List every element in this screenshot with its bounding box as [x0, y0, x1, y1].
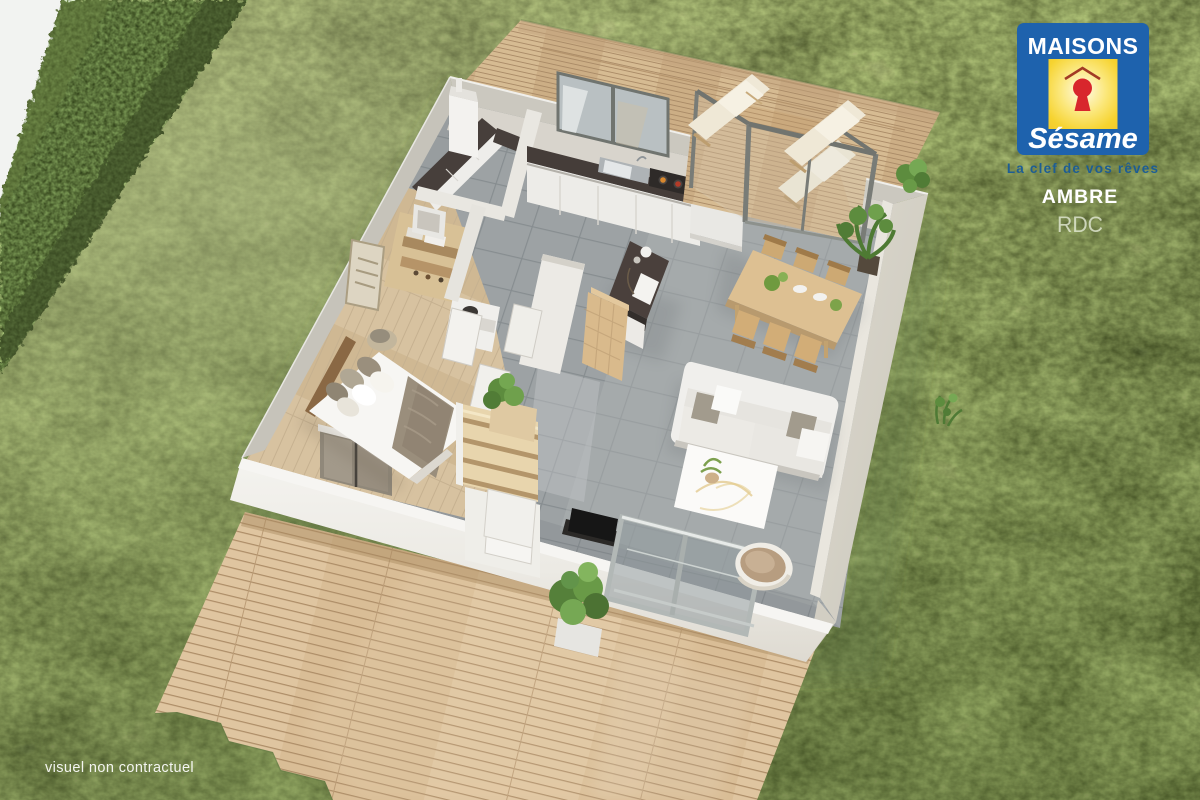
svg-text:Sésame: Sésame	[1028, 123, 1138, 155]
svg-text:La clef de vos rêves: La clef de vos rêves	[1007, 161, 1159, 176]
svg-text:RDC: RDC	[1057, 212, 1103, 237]
svg-text:MAISONS: MAISONS	[1028, 33, 1139, 59]
svg-text:visuel non contractuel: visuel non contractuel	[45, 760, 194, 776]
svg-text:AMBRE: AMBRE	[1042, 186, 1119, 208]
